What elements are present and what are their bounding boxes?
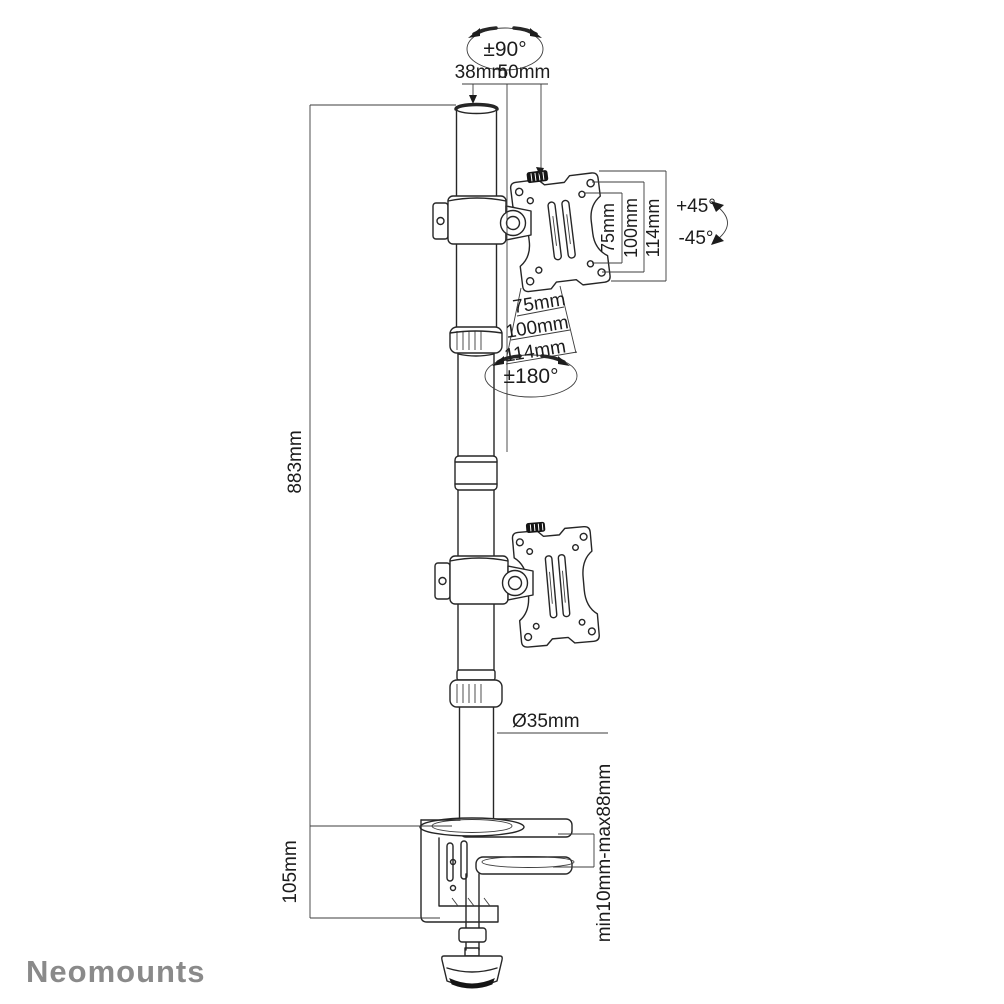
pole-swivel-label: ±90° (483, 38, 526, 61)
tilt-down-label: -45° (678, 228, 713, 249)
technical-drawing-page: ±90° 38mm 50mm 75mm 100mm 114mm +45° -45… (0, 0, 1004, 1004)
plate-rotation-label: ±180° (504, 365, 559, 388)
lower-grip-collar (450, 670, 502, 707)
tilt-up-label: +45° (676, 196, 716, 217)
desk-clamp (420, 818, 574, 988)
tilt-bolt-icon (501, 211, 526, 236)
middle-sleeve-collar (455, 456, 497, 490)
pole-diameter-label: Ø35mm (512, 711, 580, 732)
vesa-vertical-114-label: 114mm (643, 199, 663, 258)
lower-arm-clamp (435, 556, 533, 604)
pole-height-label: 883mm (285, 430, 306, 493)
brand-logo: Neomounts (26, 954, 206, 989)
clamp-knob (442, 956, 503, 988)
vesa-vertical-75-label: 75mm (598, 203, 618, 253)
vesa-vertical-100-label: 100mm (621, 198, 641, 258)
clamp-pad (476, 857, 574, 875)
top-outer-dim-label: 50mm (498, 62, 551, 83)
thumbscrew-icon (527, 170, 548, 182)
upper-grip-collar (450, 327, 502, 353)
desk-thickness-label: min10mm-max88mm (594, 764, 615, 942)
tilt-bolt-icon (503, 571, 528, 596)
monitor-mount-diagram: ±90° 38mm 50mm 75mm 100mm 114mm +45° -45… (0, 0, 1004, 1004)
thumbscrew-icon (526, 522, 545, 533)
clamp-height-label: 105mm (280, 840, 301, 903)
clamp-screw (459, 874, 486, 956)
